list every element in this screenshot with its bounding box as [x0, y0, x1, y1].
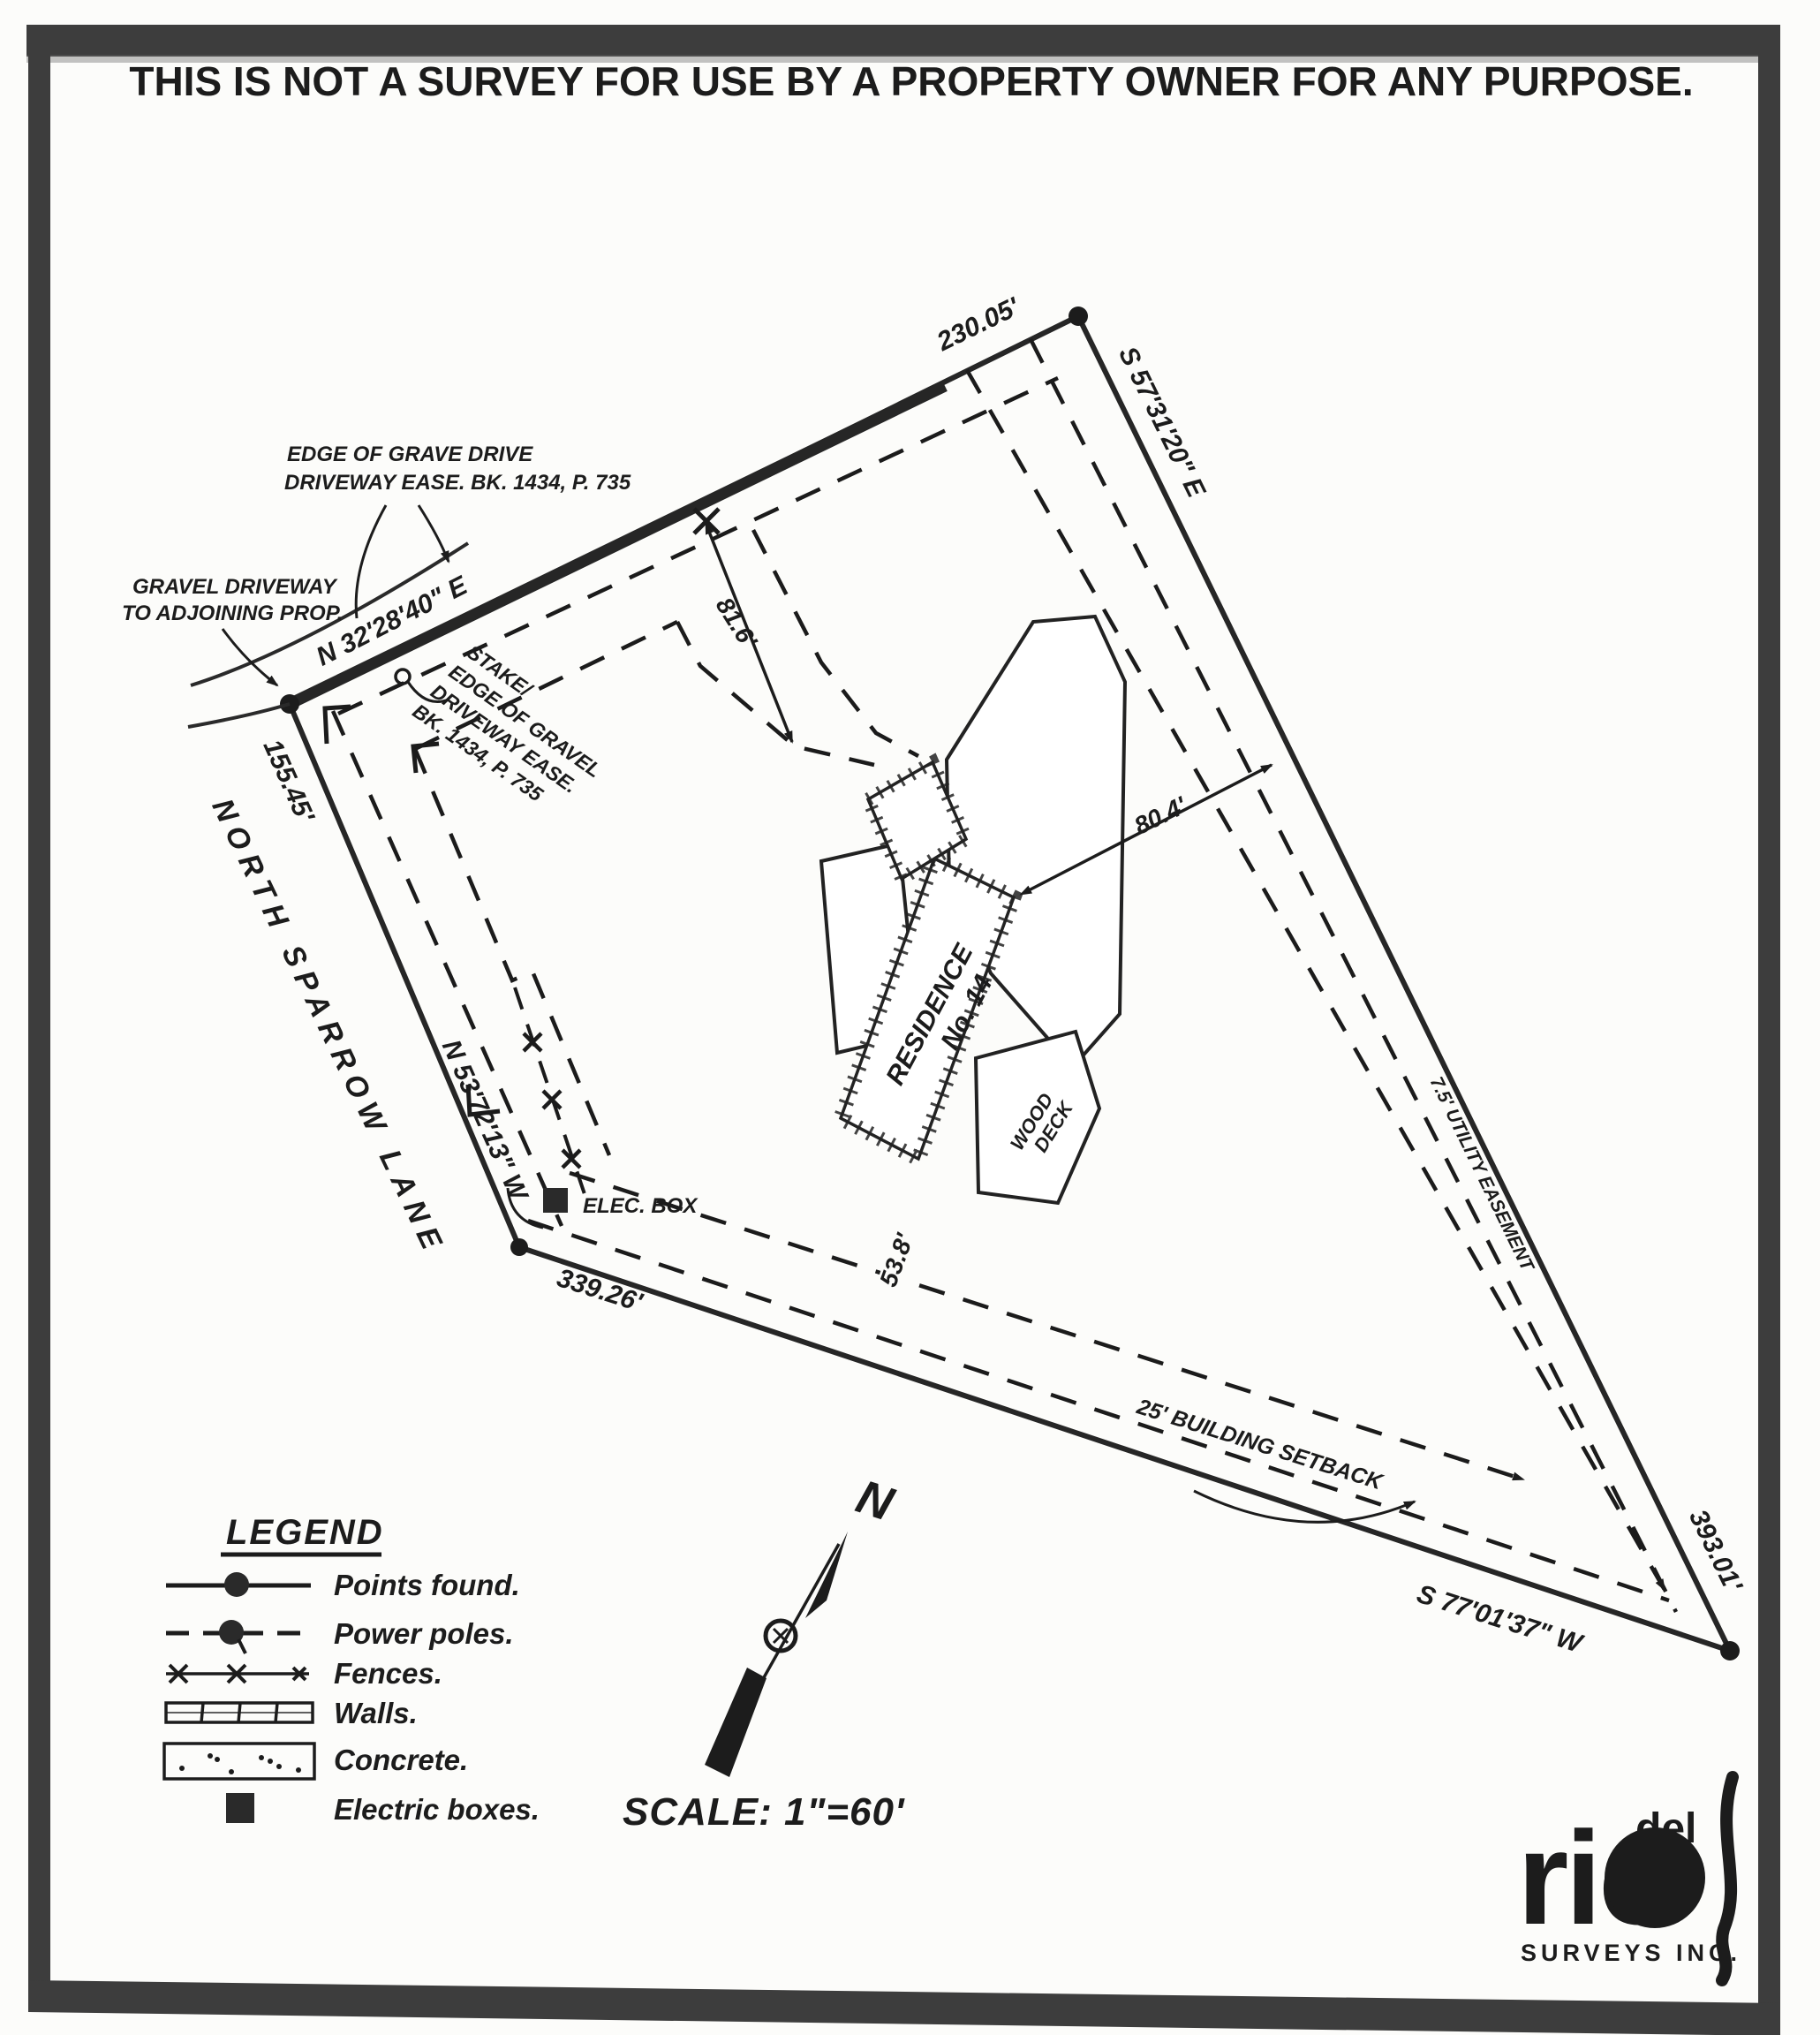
logo-surveys-inc: SURVEYS INC. [1521, 1940, 1741, 1966]
company-logo: del rio SURVEYS INC. [1517, 1777, 1741, 1980]
scale-label: SCALE: 1"=60' [623, 1790, 905, 1834]
elec-box-label: ELEC. BOX [583, 1194, 699, 1218]
logo-o-disc [1605, 1827, 1705, 1928]
fence-x-marks [524, 1033, 580, 1168]
dim-80-label: 80.4' [1130, 791, 1192, 840]
gravel-driveway-leader [223, 629, 277, 685]
road-setback-line-2 [415, 749, 609, 1155]
boundary-south-line [519, 1247, 1730, 1651]
fences-symbol [166, 1665, 309, 1683]
plat-drawing: THIS IS NOT A SURVEY FOR USE BY A PROPER… [0, 0, 1820, 2035]
bearing-road: N 53'72'13" W [436, 1035, 534, 1207]
gravel-drive-thick-line [290, 386, 945, 704]
legend-label-electric-boxes: Electric boxes. [334, 1793, 540, 1826]
stake-x-mark [694, 509, 719, 533]
electric-boxes-symbol [226, 1793, 254, 1823]
edge-of-drive-label-2: DRIVEWAY EASE. BK. 1434, P. 735 [284, 471, 631, 495]
street-name-label: NORTH SPARROW LANE [205, 793, 451, 1261]
building-setback-line-south [570, 1173, 1523, 1479]
points-found-symbol [166, 1572, 311, 1597]
corner-point-south [510, 1238, 528, 1256]
north-arrow-blade [805, 1532, 848, 1618]
gravel-driveway-label-1: GRAVEL DRIVEWAY [132, 575, 338, 599]
legend-label-fences: Fences. [334, 1657, 442, 1690]
corner-point-north [1069, 306, 1088, 326]
legend-label-concrete: Concrete. [334, 1744, 468, 1776]
drive-curve-lower [188, 704, 290, 727]
fence-line [515, 987, 585, 1194]
utility-easement-line-east [1031, 339, 1676, 1612]
legend-label-walls: Walls. [334, 1697, 418, 1729]
building-setback-label: 25' BUILDING SETBACK [1133, 1394, 1386, 1495]
residence-footprint [821, 617, 1125, 1203]
utility-easement-label: 7.5' UTILITY EASEMENT [1426, 1074, 1538, 1276]
legend-label-power-poles: Power poles. [334, 1617, 514, 1650]
survey-sheet: THIS IS NOT A SURVEY FOR USE BY A PROPER… [0, 0, 1820, 2035]
utility-easement-line-south [528, 1221, 1669, 1600]
gravel-driveway-label-2: TO ADJOINING PROP. [122, 601, 343, 625]
edge-of-drive-leader-2 [419, 505, 449, 562]
page-title: THIS IS NOT A SURVEY FOR USE BY A PROPER… [129, 58, 1693, 104]
concrete-symbol [164, 1744, 314, 1779]
north-arrow: N [705, 1470, 900, 1777]
legend: LEGEND Points found. Power poles. Fences… [164, 1513, 540, 1826]
edge-of-drive-label-1: EDGE OF GRAVE DRIVE [287, 443, 533, 466]
corner-point-east [1720, 1641, 1740, 1661]
walls-symbol [166, 1703, 313, 1722]
driveway-funnel-right [753, 530, 918, 756]
electric-box-symbol-plan [543, 1188, 568, 1213]
legend-label-points-found: Points found. [334, 1569, 520, 1601]
power-poles-symbol [166, 1620, 311, 1653]
north-letter: N [850, 1470, 901, 1531]
boundary-northeast-line [1078, 316, 1730, 1651]
legend-title: LEGEND [226, 1513, 384, 1552]
distance-northeast: 393.01' [1683, 1505, 1748, 1597]
bearing-south: S 77'01'37" W [1414, 1579, 1588, 1659]
north-arrow-tail [705, 1668, 767, 1777]
